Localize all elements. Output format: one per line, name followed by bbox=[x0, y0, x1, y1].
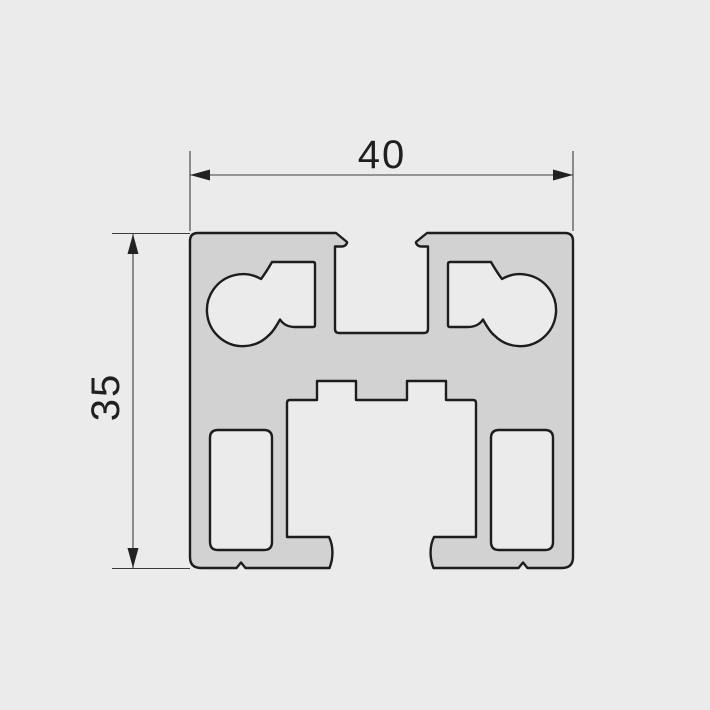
arrow-right-icon bbox=[553, 170, 573, 181]
profile-body-shape bbox=[190, 233, 573, 568]
arrow-up-icon bbox=[128, 234, 139, 254]
arrow-left-icon bbox=[190, 170, 210, 181]
profile-cross-section bbox=[190, 233, 573, 568]
profile-technical-drawing: 40 35 bbox=[0, 0, 710, 710]
width-dimension-label: 40 bbox=[358, 133, 407, 177]
drawing-canvas: 40 35 bbox=[0, 0, 710, 710]
width-dimension: 40 bbox=[190, 133, 573, 231]
height-dimension-label: 35 bbox=[84, 373, 128, 422]
height-dimension: 35 bbox=[84, 234, 190, 569]
arrow-down-icon bbox=[128, 548, 139, 568]
